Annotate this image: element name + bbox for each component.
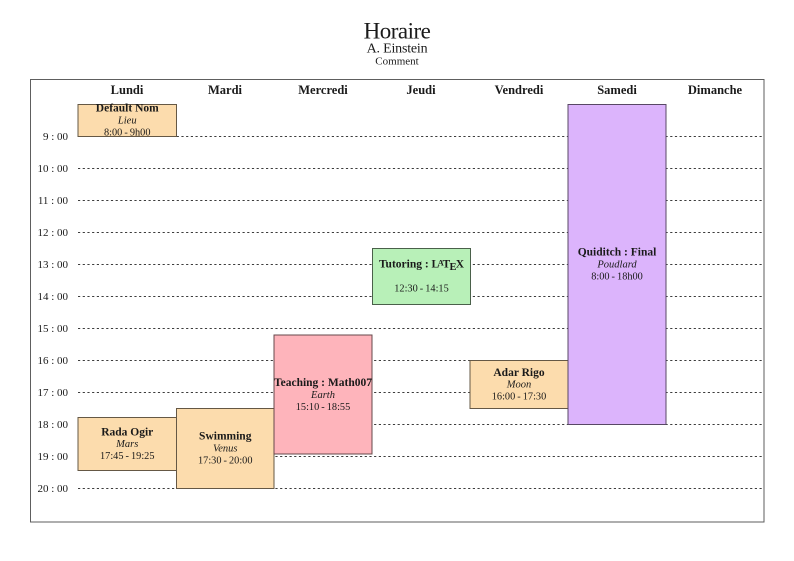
svg-text:13 : 00: 13 : 00 bbox=[37, 259, 68, 271]
svg-text:19 : 00: 19 : 00 bbox=[37, 451, 68, 463]
svg-text:Quiditch : Final: Quiditch : Final bbox=[578, 247, 657, 259]
svg-text:Samedi: Samedi bbox=[597, 83, 637, 97]
svg-text:Poudlard: Poudlard bbox=[596, 259, 637, 270]
svg-text:8:00 - 9h00: 8:00 - 9h00 bbox=[104, 127, 150, 138]
svg-text:10 : 00: 10 : 00 bbox=[37, 163, 68, 175]
svg-text:Rada Ogir: Rada Ogir bbox=[101, 426, 153, 438]
svg-text:9 : 00: 9 : 00 bbox=[43, 131, 69, 143]
svg-text:Lundi: Lundi bbox=[111, 83, 144, 97]
svg-text:12 : 00: 12 : 00 bbox=[37, 227, 68, 239]
svg-text:18 : 00: 18 : 00 bbox=[37, 419, 68, 431]
svg-text:16:00 - 17:30: 16:00 - 17:30 bbox=[492, 392, 546, 403]
svg-text:Dimanche: Dimanche bbox=[688, 83, 743, 97]
svg-text:Teaching : Math007: Teaching : Math007 bbox=[274, 377, 372, 389]
svg-text:15 : 00: 15 : 00 bbox=[37, 323, 68, 335]
svg-text:Earth: Earth bbox=[310, 390, 335, 401]
svg-text:Adar Rigo: Adar Rigo bbox=[493, 367, 544, 379]
svg-text:Vendredi: Vendredi bbox=[495, 83, 544, 97]
svg-text:Mars: Mars bbox=[115, 439, 138, 450]
svg-text:14 : 00: 14 : 00 bbox=[37, 291, 68, 303]
svg-text:8:00 - 18h00: 8:00 - 18h00 bbox=[591, 271, 643, 282]
svg-text:Comment: Comment bbox=[375, 56, 418, 68]
svg-text:17:30 - 20:00: 17:30 - 20:00 bbox=[198, 456, 252, 467]
svg-text:A. Einstein: A. Einstein bbox=[367, 41, 428, 56]
svg-text:Swimming: Swimming bbox=[199, 431, 252, 443]
svg-text:15:10 - 18:55: 15:10 - 18:55 bbox=[296, 402, 350, 413]
svg-text:Moon: Moon bbox=[506, 380, 532, 391]
svg-text:Venus: Venus bbox=[213, 444, 238, 455]
svg-text:11 : 00: 11 : 00 bbox=[38, 195, 69, 207]
svg-text:Jeudi: Jeudi bbox=[406, 83, 436, 97]
svg-text:Horaire: Horaire bbox=[364, 19, 431, 44]
svg-text:20 : 00: 20 : 00 bbox=[37, 483, 68, 495]
svg-text:Mercredi: Mercredi bbox=[298, 83, 348, 97]
svg-text:Default Nom: Default Nom bbox=[96, 103, 159, 115]
svg-text:Lieu: Lieu bbox=[117, 116, 137, 127]
svg-text:Mardi: Mardi bbox=[208, 83, 243, 97]
svg-text:16 : 00: 16 : 00 bbox=[37, 355, 68, 367]
svg-text:12:30 - 14:15: 12:30 - 14:15 bbox=[394, 284, 448, 295]
svg-text:17 : 00: 17 : 00 bbox=[37, 387, 68, 399]
svg-text:17:45 - 19:25: 17:45 - 19:25 bbox=[100, 451, 154, 462]
